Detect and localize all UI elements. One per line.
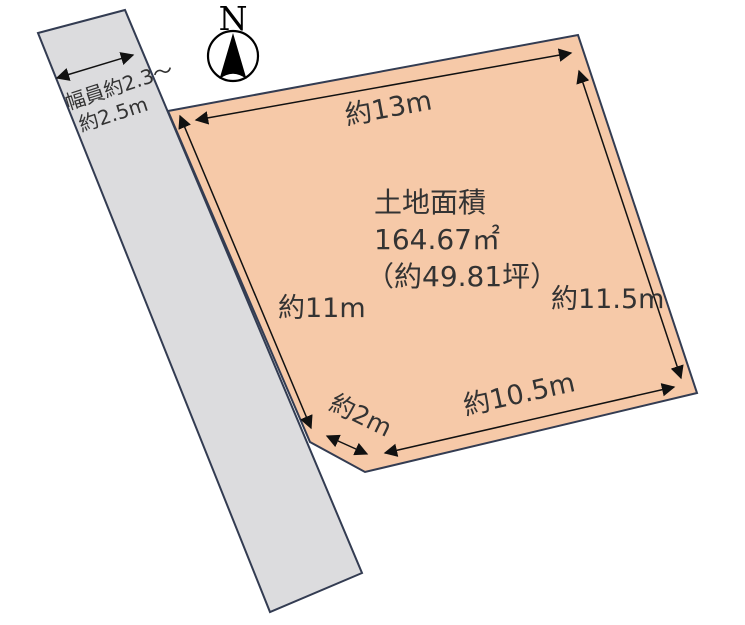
parcel-area-value: 164.67㎡ — [374, 223, 500, 256]
land-plot-diagram: 幅員約2.3〜 約2.5m 約13m 約11m 約11.5m 約10.5m 約2… — [0, 0, 745, 625]
parcel-area-tsubo: （約49.81坪） — [366, 260, 558, 293]
compass: N — [208, 0, 258, 81]
parcel-area-title: 土地面積 — [374, 186, 486, 219]
plot-diagram-canvas: 幅員約2.3〜 約2.5m 約13m 約11m 約11.5m 約10.5m 約2… — [0, 0, 745, 625]
dimension-label-right: 約11.5m — [551, 284, 664, 315]
dimension-label-left: 約11m — [278, 293, 366, 324]
